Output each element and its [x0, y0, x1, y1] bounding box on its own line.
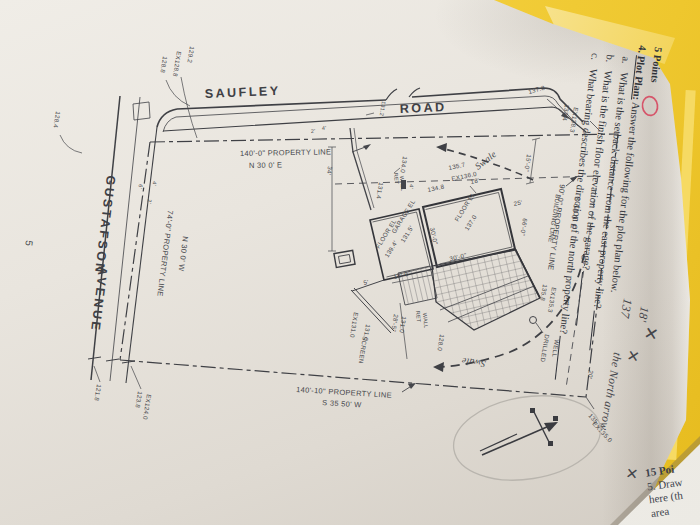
q4a-letter: a. — [617, 56, 634, 74]
q4c-letter: c. — [586, 52, 603, 70]
photo-of-worksheet: 5 Points 4. Plot Plan: Answer the follow… — [0, 0, 700, 525]
q4-title: Plot Plan: — [631, 55, 647, 101]
q4-number: 4. — [637, 45, 649, 54]
second-sheet-text: 15 Poi 5. Draw here (th area — [644, 462, 687, 520]
q4b-letter: b. — [601, 54, 618, 72]
